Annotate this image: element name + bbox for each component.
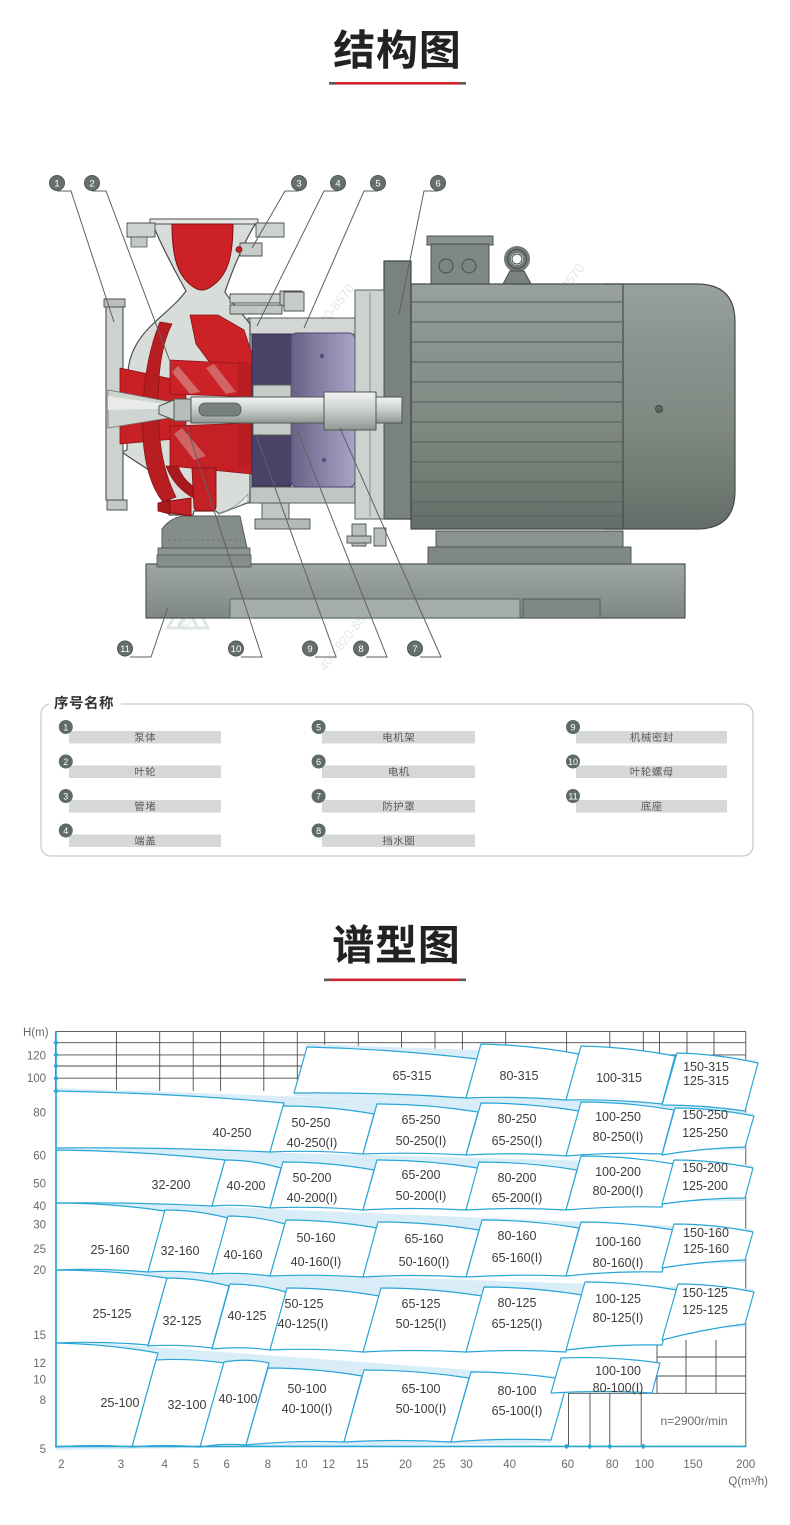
- svg-text:9: 9: [307, 644, 312, 655]
- svg-text:125-250: 125-250: [682, 1126, 728, 1140]
- svg-text:30: 30: [460, 1459, 473, 1471]
- svg-text:10: 10: [231, 644, 242, 655]
- svg-text:50-160(I): 50-160(I): [399, 1255, 450, 1269]
- svg-text:10: 10: [295, 1459, 308, 1471]
- svg-text:65-160(I): 65-160(I): [492, 1251, 543, 1265]
- svg-text:20: 20: [33, 1265, 46, 1277]
- svg-text:80-250: 80-250: [498, 1112, 537, 1126]
- svg-text:5: 5: [40, 1444, 46, 1456]
- svg-text:100-160: 100-160: [595, 1235, 641, 1249]
- svg-text:40-100: 40-100: [219, 1392, 258, 1406]
- svg-text:150-125: 150-125: [682, 1286, 728, 1300]
- svg-text:9: 9: [570, 722, 575, 732]
- svg-text:50-200(I): 50-200(I): [396, 1189, 447, 1203]
- svg-text:100-125: 100-125: [595, 1292, 641, 1306]
- svg-text:100-250: 100-250: [595, 1110, 641, 1124]
- svg-text:50-200: 50-200: [293, 1171, 332, 1185]
- svg-text:125-315: 125-315: [683, 1074, 729, 1088]
- svg-text:Q(m³/h): Q(m³/h): [728, 1476, 768, 1488]
- svg-text:65-125: 65-125: [402, 1297, 441, 1311]
- svg-text:5: 5: [375, 179, 380, 190]
- svg-text:125-125: 125-125: [682, 1303, 728, 1317]
- svg-text:65-200: 65-200: [402, 1168, 441, 1182]
- svg-text:40-250: 40-250: [213, 1126, 252, 1140]
- svg-text:40-160(I): 40-160(I): [291, 1255, 342, 1269]
- svg-text:1: 1: [54, 179, 59, 190]
- svg-text:5: 5: [316, 722, 321, 732]
- svg-text:2: 2: [89, 179, 94, 190]
- svg-text:80-125(I): 80-125(I): [593, 1311, 644, 1325]
- svg-text:125-200: 125-200: [682, 1179, 728, 1193]
- svg-text:25: 25: [433, 1459, 446, 1471]
- svg-text:80-200(I): 80-200(I): [593, 1184, 644, 1198]
- svg-text:80-200: 80-200: [498, 1171, 537, 1185]
- svg-text:50-160: 50-160: [297, 1231, 336, 1245]
- svg-text:8: 8: [358, 644, 363, 655]
- svg-text:8: 8: [316, 826, 321, 836]
- svg-text:4: 4: [161, 1459, 168, 1471]
- svg-text:200: 200: [736, 1459, 755, 1471]
- svg-text:6: 6: [223, 1459, 229, 1471]
- svg-text:10: 10: [33, 1375, 46, 1387]
- svg-text:80: 80: [606, 1459, 619, 1471]
- svg-text:100: 100: [635, 1459, 654, 1471]
- svg-text:50-125(I): 50-125(I): [396, 1317, 447, 1331]
- svg-text:32-160: 32-160: [161, 1244, 200, 1258]
- svg-text:10: 10: [568, 757, 578, 767]
- svg-text:H(m): H(m): [23, 1027, 49, 1039]
- svg-text:32-125: 32-125: [163, 1314, 202, 1328]
- svg-text:50-125: 50-125: [285, 1297, 324, 1311]
- svg-text:150-200: 150-200: [682, 1161, 728, 1175]
- svg-text:1: 1: [63, 722, 68, 732]
- svg-text:100-200: 100-200: [595, 1165, 641, 1179]
- svg-text:40-200: 40-200: [227, 1179, 266, 1193]
- svg-text:3: 3: [118, 1459, 124, 1471]
- svg-text:3: 3: [296, 179, 301, 190]
- svg-text:65-100: 65-100: [402, 1382, 441, 1396]
- svg-text:50-250: 50-250: [292, 1116, 331, 1130]
- svg-text:125-160: 125-160: [683, 1242, 729, 1256]
- svg-text:50-100(I): 50-100(I): [396, 1402, 447, 1416]
- svg-text:65-315: 65-315: [393, 1069, 432, 1083]
- svg-text:8: 8: [40, 1395, 46, 1407]
- svg-text:2: 2: [58, 1459, 64, 1471]
- svg-text:11: 11: [120, 644, 130, 655]
- svg-text:150-250: 150-250: [682, 1108, 728, 1122]
- svg-text:40-125(I): 40-125(I): [278, 1317, 329, 1331]
- svg-text:65-160: 65-160: [405, 1232, 444, 1246]
- svg-text:80-315: 80-315: [500, 1069, 539, 1083]
- svg-text:80-100: 80-100: [498, 1384, 537, 1398]
- svg-text:25: 25: [33, 1244, 46, 1256]
- svg-text:40: 40: [503, 1459, 516, 1471]
- svg-text:150: 150: [683, 1459, 702, 1471]
- svg-text:3: 3: [63, 791, 68, 801]
- svg-text:65-250(I): 65-250(I): [492, 1134, 543, 1148]
- svg-text:8: 8: [265, 1459, 271, 1471]
- svg-text:40-250(I): 40-250(I): [287, 1136, 338, 1150]
- svg-text:100: 100: [27, 1073, 46, 1085]
- svg-text:50-250(I): 50-250(I): [396, 1134, 447, 1148]
- svg-text:40-125: 40-125: [228, 1309, 267, 1323]
- svg-text:25-125: 25-125: [93, 1307, 132, 1321]
- svg-text:6: 6: [316, 757, 321, 767]
- svg-text:12: 12: [322, 1459, 335, 1471]
- svg-text:40-100(I): 40-100(I): [282, 1402, 333, 1416]
- svg-text:100-100: 100-100: [595, 1364, 641, 1378]
- svg-text:12: 12: [33, 1358, 46, 1370]
- svg-text:65-200(I): 65-200(I): [492, 1191, 543, 1205]
- svg-text:65-100(I): 65-100(I): [492, 1404, 543, 1418]
- svg-text:30: 30: [33, 1220, 46, 1232]
- svg-text:25-100: 25-100: [101, 1396, 140, 1410]
- svg-text:15: 15: [33, 1330, 46, 1342]
- svg-text:150-160: 150-160: [683, 1226, 729, 1240]
- svg-text:150-315: 150-315: [683, 1060, 729, 1074]
- svg-text:60: 60: [561, 1459, 574, 1471]
- svg-text:80: 80: [33, 1108, 46, 1120]
- svg-text:32-200: 32-200: [152, 1178, 191, 1192]
- svg-text:50-100: 50-100: [288, 1382, 327, 1396]
- svg-text:11: 11: [568, 791, 577, 801]
- svg-text:7: 7: [316, 791, 321, 801]
- svg-text:60: 60: [33, 1151, 46, 1163]
- svg-text:25-160: 25-160: [91, 1243, 130, 1257]
- svg-text:n=2900r/min: n=2900r/min: [660, 1414, 727, 1428]
- svg-text:120: 120: [27, 1051, 46, 1063]
- svg-text:100-315: 100-315: [596, 1071, 642, 1085]
- svg-text:65-125(I): 65-125(I): [492, 1317, 543, 1331]
- svg-text:80-100(I): 80-100(I): [593, 1381, 644, 1395]
- svg-text:15: 15: [356, 1459, 369, 1471]
- svg-text:65-250: 65-250: [402, 1113, 441, 1127]
- svg-text:7: 7: [412, 644, 417, 655]
- svg-text:40: 40: [33, 1201, 46, 1213]
- svg-text:2: 2: [63, 757, 68, 767]
- svg-text:32-100: 32-100: [168, 1398, 207, 1412]
- svg-text:80-125: 80-125: [498, 1296, 537, 1310]
- svg-text:80-250(I): 80-250(I): [593, 1130, 644, 1144]
- svg-text:4: 4: [63, 826, 68, 836]
- svg-text:6: 6: [435, 179, 440, 190]
- svg-text:50: 50: [33, 1179, 46, 1191]
- svg-text:40-200(I): 40-200(I): [287, 1191, 338, 1205]
- svg-text:80-160(I): 80-160(I): [593, 1256, 644, 1270]
- svg-text:80-160: 80-160: [498, 1229, 537, 1243]
- svg-text:40-160: 40-160: [224, 1248, 263, 1262]
- svg-text:4: 4: [335, 179, 340, 190]
- svg-text:20: 20: [399, 1459, 412, 1471]
- svg-text:5: 5: [193, 1459, 199, 1471]
